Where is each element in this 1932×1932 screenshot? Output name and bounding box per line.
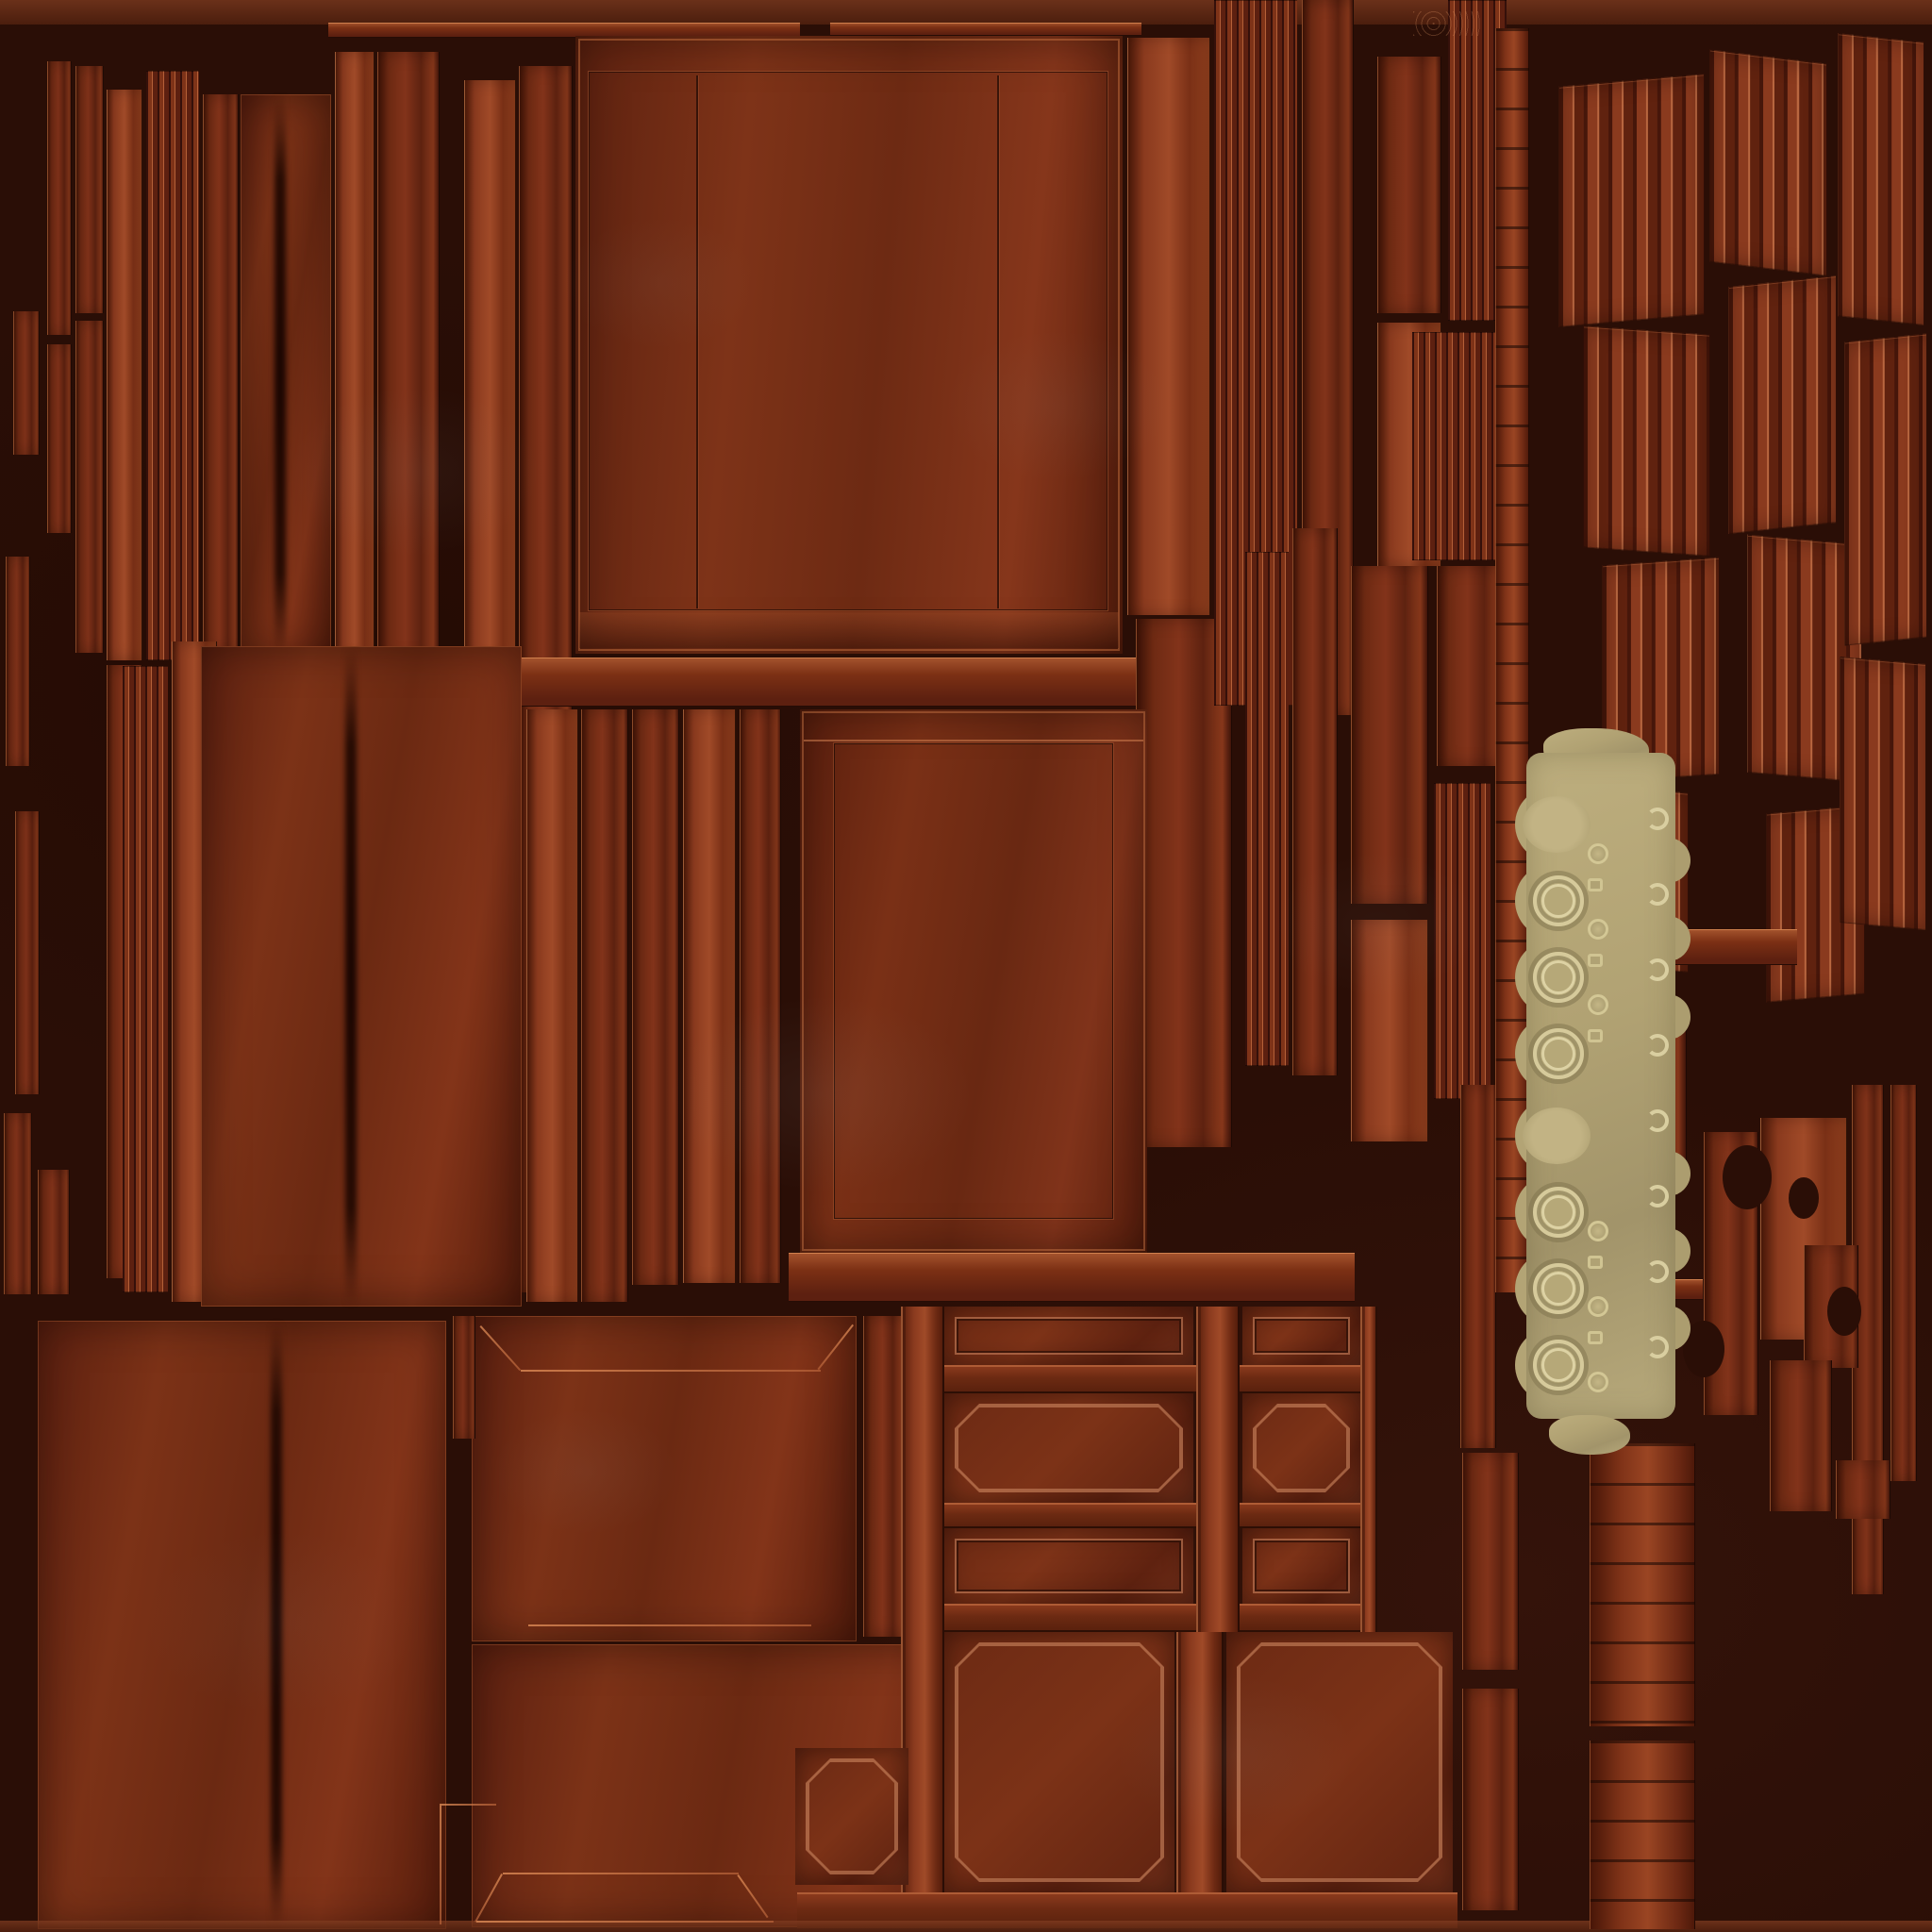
smudge-overlay: [0, 0, 1932, 1932]
texture-atlas-canvas: [0, 0, 1932, 1932]
